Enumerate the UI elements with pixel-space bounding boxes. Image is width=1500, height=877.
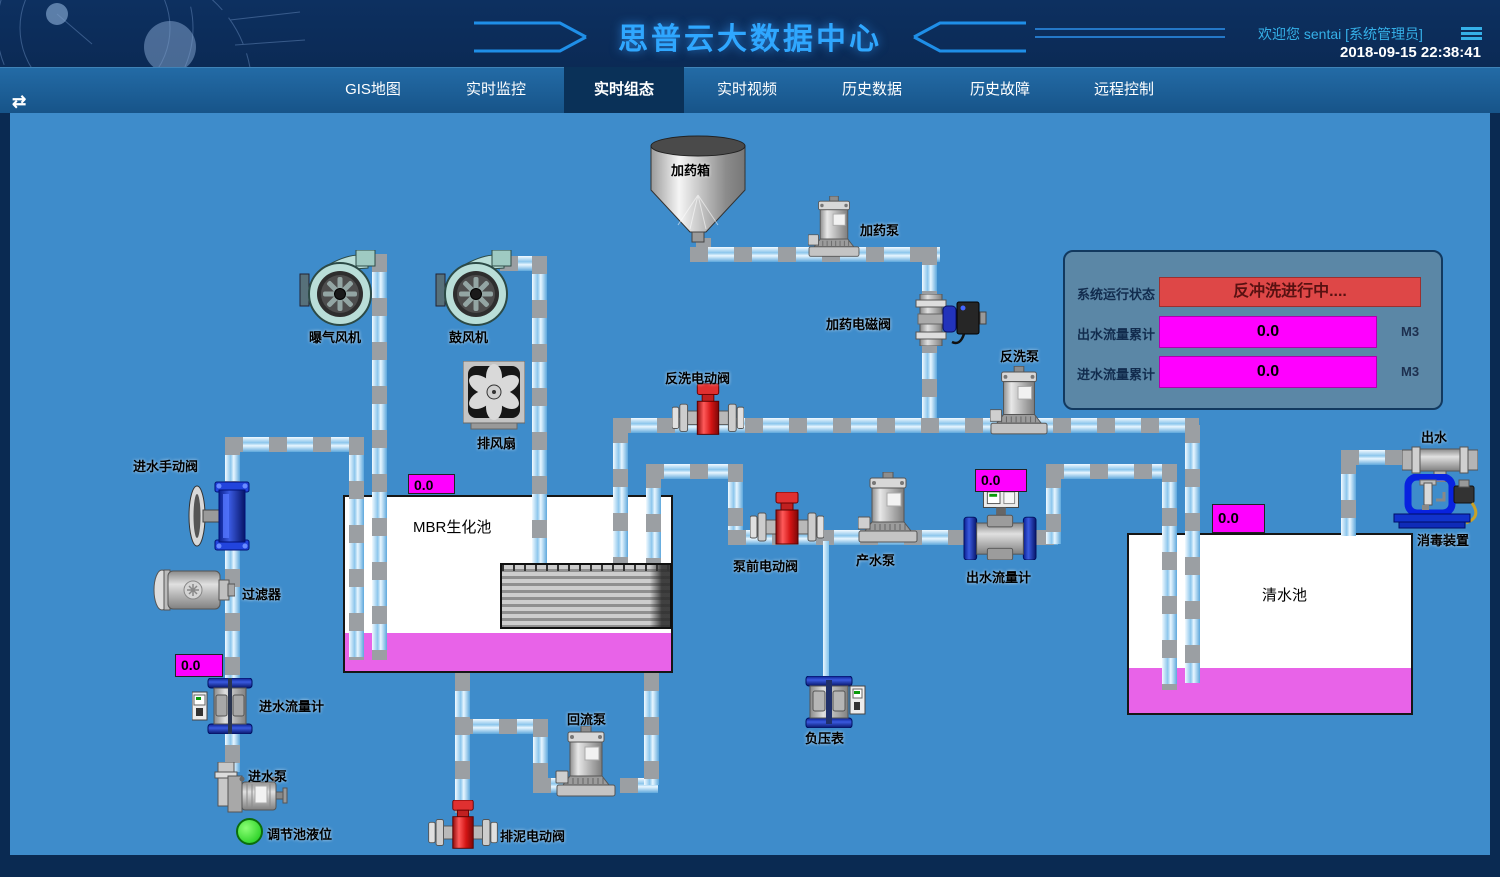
title-right-bracket [890,17,1030,57]
pipe-segment [455,673,470,813]
return-pump[interactable] [554,726,618,798]
dosing-pump[interactable] [808,196,860,258]
pipe-segment [1185,425,1200,683]
regulating-tank-level-label: 调节池液位 [267,824,332,843]
tab-remote-control[interactable]: 远程控制 [1064,67,1184,113]
sludge-valve[interactable] [426,800,500,852]
dosing-tank[interactable] [648,135,748,247]
tab-realtime-monitor[interactable]: 实时监控 [436,67,556,113]
product-pump[interactable] [858,472,918,544]
pipe-segment [349,437,364,660]
pipe-segment [1046,470,1061,544]
pipe-segment [1162,464,1177,690]
outlet-total-unit: M3 [1401,324,1419,339]
dosing-solenoid-valve-label: 加药电磁阀 [826,314,891,333]
pipe-segment [1341,456,1356,536]
inlet-manual-valve-label: 进水手动阀 [133,456,198,475]
filter[interactable] [153,568,235,612]
air-blower-label: 鼓风机 [449,327,488,346]
disinfection-device-label: 消毒装置 [1417,530,1469,549]
welcome-text: 欢迎您 sentai [系统管理员] [1258,24,1423,44]
regulating-tank-level-indicator [236,818,263,845]
dosing-solenoid-valve[interactable] [910,294,988,346]
membrane-module [500,563,672,629]
inlet-total-value: 0.0 [1159,356,1377,388]
status-panel: 系统运行状态 反冲洗进行中.... 出水流量累计 0.0 M3 进水流量累计 0… [1063,250,1443,410]
system-status-label: 系统运行状态 [1077,284,1155,303]
clean-water-tank-label: 清水池 [1262,584,1307,605]
outlet-flowmeter[interactable] [963,488,1037,560]
dosing-tank-label: 加药箱 [671,160,710,179]
tab-gis-map[interactable]: GIS地图 [313,67,433,113]
collapse-arrows-icon[interactable]: ⇄ [12,92,26,112]
exhaust-fan[interactable] [463,361,525,431]
outlet-flow-readout: 0.0 [975,469,1027,492]
outlet-flowmeter-label: 出水流量计 [966,567,1031,586]
pipe-segment [225,437,363,452]
vacuum-gauge[interactable] [800,676,866,728]
pipe-segment [613,425,628,570]
system-status-value: 反冲洗进行中.... [1159,277,1421,307]
inlet-flowmeter-label: 进水流量计 [259,696,324,715]
vacuum-gauge-label: 负压表 [805,728,844,747]
air-blower[interactable] [434,250,522,326]
prepump-valve-label: 泵前电动阀 [733,556,798,575]
tab-history-fault[interactable]: 历史故障 [940,67,1060,113]
pipe-segment [823,541,829,681]
mbr-level-readout: 0.0 [408,474,455,494]
outlet-label: 出水 [1421,427,1447,446]
inlet-manual-valve[interactable] [186,474,252,558]
filter-label: 过滤器 [242,584,281,603]
return-pump-label: 回流泵 [567,709,606,728]
header-line-decoration [1035,36,1225,38]
tab-realtime-mimic[interactable]: 实时组态 [564,67,684,113]
inlet-pump-label: 进水泵 [248,766,287,785]
backwash-valve[interactable] [672,383,744,439]
tab-history-data[interactable]: 历史数据 [812,67,932,113]
inlet-flowmeter[interactable] [192,678,258,734]
tab-realtime-video[interactable]: 实时视频 [687,67,807,113]
clean-tank-level-readout: 0.0 [1212,504,1265,533]
inlet-total-unit: M3 [1401,364,1419,379]
outlet-total-label: 出水流量累计 [1077,324,1155,343]
header-bar: 思普云大数据中心 欢迎您 sentai [系统管理员] 2018-09-15 2… [0,0,1500,67]
pipe-segment [532,256,547,568]
pipe-segment [646,470,661,570]
dosing-pump-label: 加药泵 [860,220,899,239]
prepump-valve[interactable] [750,492,824,548]
product-pump-label: 产水泵 [856,550,895,569]
membrane-ticks [502,565,670,571]
inlet-flow-readout: 0.0 [175,654,223,677]
pipe-segment [644,673,659,785]
aeration-blower-label: 曝气风机 [309,327,361,346]
datetime-display: 2018-09-15 22:38:41 [1340,44,1481,61]
backwash-valve-label: 反洗电动阀 [665,368,730,387]
mbr-tank-liquid [345,633,671,671]
disinfection-device[interactable] [1392,474,1484,530]
scada-dashboard: { "header": { "title": "思普云大数据中心", "welc… [0,0,1500,877]
header-line-decoration [1035,28,1225,30]
aeration-blower[interactable] [298,250,386,326]
exhaust-fan-label: 排风扇 [477,433,516,452]
mbr-tank-label: MBR生化池 [413,516,491,537]
backwash-pump-label: 反洗泵 [1000,346,1039,365]
inlet-total-label: 进水流量累计 [1077,364,1155,383]
menu-list-icon[interactable] [1466,25,1482,42]
pipe-segment [1046,464,1176,479]
sludge-valve-label: 排泥电动阀 [500,826,565,845]
backwash-pump[interactable] [990,366,1048,436]
outlet-total-value: 0.0 [1159,316,1377,348]
